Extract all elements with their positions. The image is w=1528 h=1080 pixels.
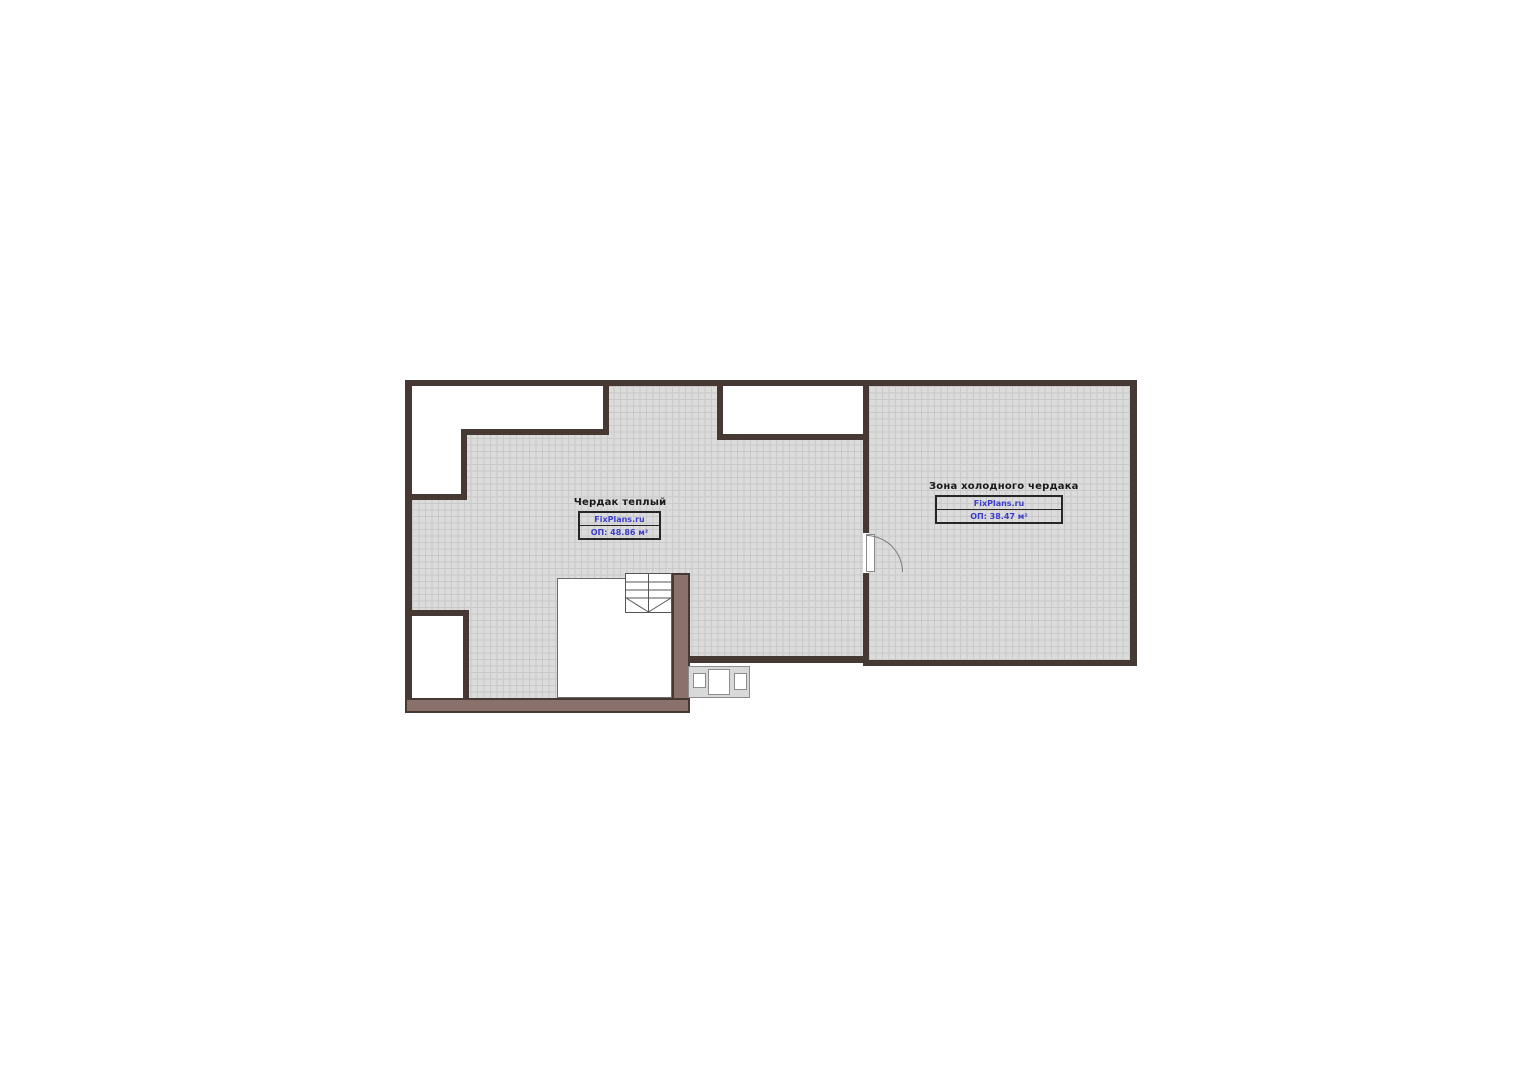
warm-attic-watermark: FixPlans.ru [580,513,659,525]
chimney-flue-left [693,673,706,688]
wall-bottom-cold-attic [863,660,1137,666]
divider-wall-upper [863,386,869,533]
wall-void4-right [463,610,469,698]
wall-void3-bottom [717,434,863,440]
wall-void1-bottom [461,429,609,435]
staircase-icon [625,573,672,613]
cold-attic-info-box: FixPlans.ru ОП: 38.47 м² [935,495,1063,524]
roof-void-bottom-left [412,616,463,698]
roof-void-top-middle [723,386,863,434]
cold-attic-watermark: FixPlans.ru [937,497,1061,509]
wall-void2-bottom [405,494,467,500]
wall-void1-right [603,386,609,435]
wall-void4-top [405,610,469,616]
roof-void-top-left-narrow [412,386,461,494]
warm-attic-title: Чердак теплый [570,497,670,508]
divider-wall-lower [863,573,869,663]
wall-left [405,380,412,713]
wall-void3-left [717,386,723,440]
cold-attic-title: Зона холодного чердака [929,481,1069,492]
wall-top [405,380,1137,386]
wall-right [1130,380,1137,666]
chimney-flue-center [708,669,730,695]
cold-attic-area: ОП: 38.47 м² [937,509,1061,522]
warm-attic-info-box: FixPlans.ru ОП: 48.86 м² [578,511,661,540]
chimney-block [688,666,750,698]
chimney-flue-right [734,673,747,690]
bottom-thick-wall [405,698,690,713]
wall-void2-right [461,429,467,500]
floor-plan: Чердак теплый FixPlans.ru ОП: 48.86 м² З… [0,0,1528,1080]
warm-attic-area: ОП: 48.86 м² [580,525,659,538]
wall-bottom-warm-attic-east [688,656,869,663]
